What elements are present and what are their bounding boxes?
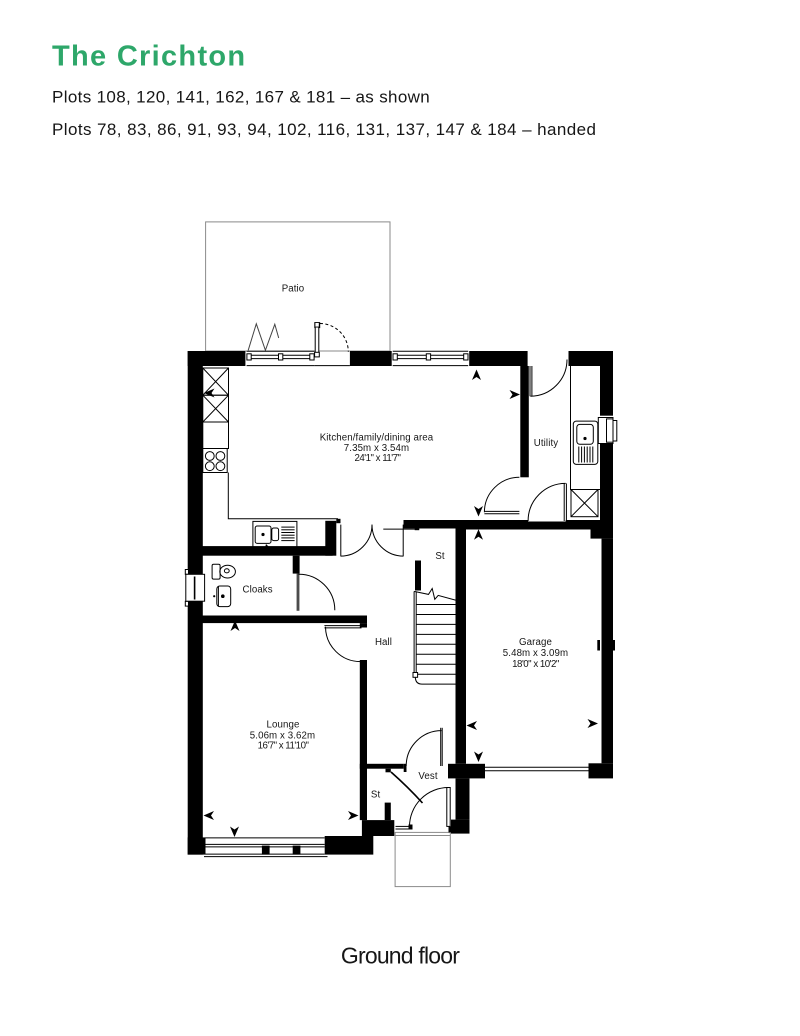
svg-text:Garage: Garage [519, 637, 552, 648]
svg-text:Cloaks: Cloaks [242, 584, 272, 595]
svg-text:Hall: Hall [375, 637, 392, 648]
svg-text:Lounge: Lounge [267, 720, 300, 731]
svg-text:Utility: Utility [534, 438, 558, 449]
svg-text:Ground floor: Ground floor [341, 943, 460, 969]
svg-text:Plots 78, 83, 86, 91, 93, 94,: Plots 78, 83, 86, 91, 93, 94, 102, 116, … [52, 120, 596, 139]
svg-text:Plots 108, 120, 141, 162, 167: Plots 108, 120, 141, 162, 167 & 181 – as… [52, 88, 430, 107]
svg-text:18'0" x 10'2": 18'0" x 10'2" [512, 659, 560, 670]
svg-text:St: St [435, 551, 445, 562]
svg-text:5.48m x 3.09m: 5.48m x 3.09m [503, 648, 568, 659]
svg-text:St: St [371, 790, 381, 801]
svg-text:7.35m x 3.54m: 7.35m x 3.54m [344, 443, 409, 454]
svg-text:16'7" x 11'10": 16'7" x 11'10" [258, 741, 310, 752]
svg-text:Vest: Vest [418, 771, 437, 782]
svg-text:24'1" x 11'7": 24'1" x 11'7" [355, 453, 402, 464]
svg-text:Patio: Patio [282, 284, 305, 295]
svg-text:The Crichton: The Crichton [52, 40, 246, 72]
